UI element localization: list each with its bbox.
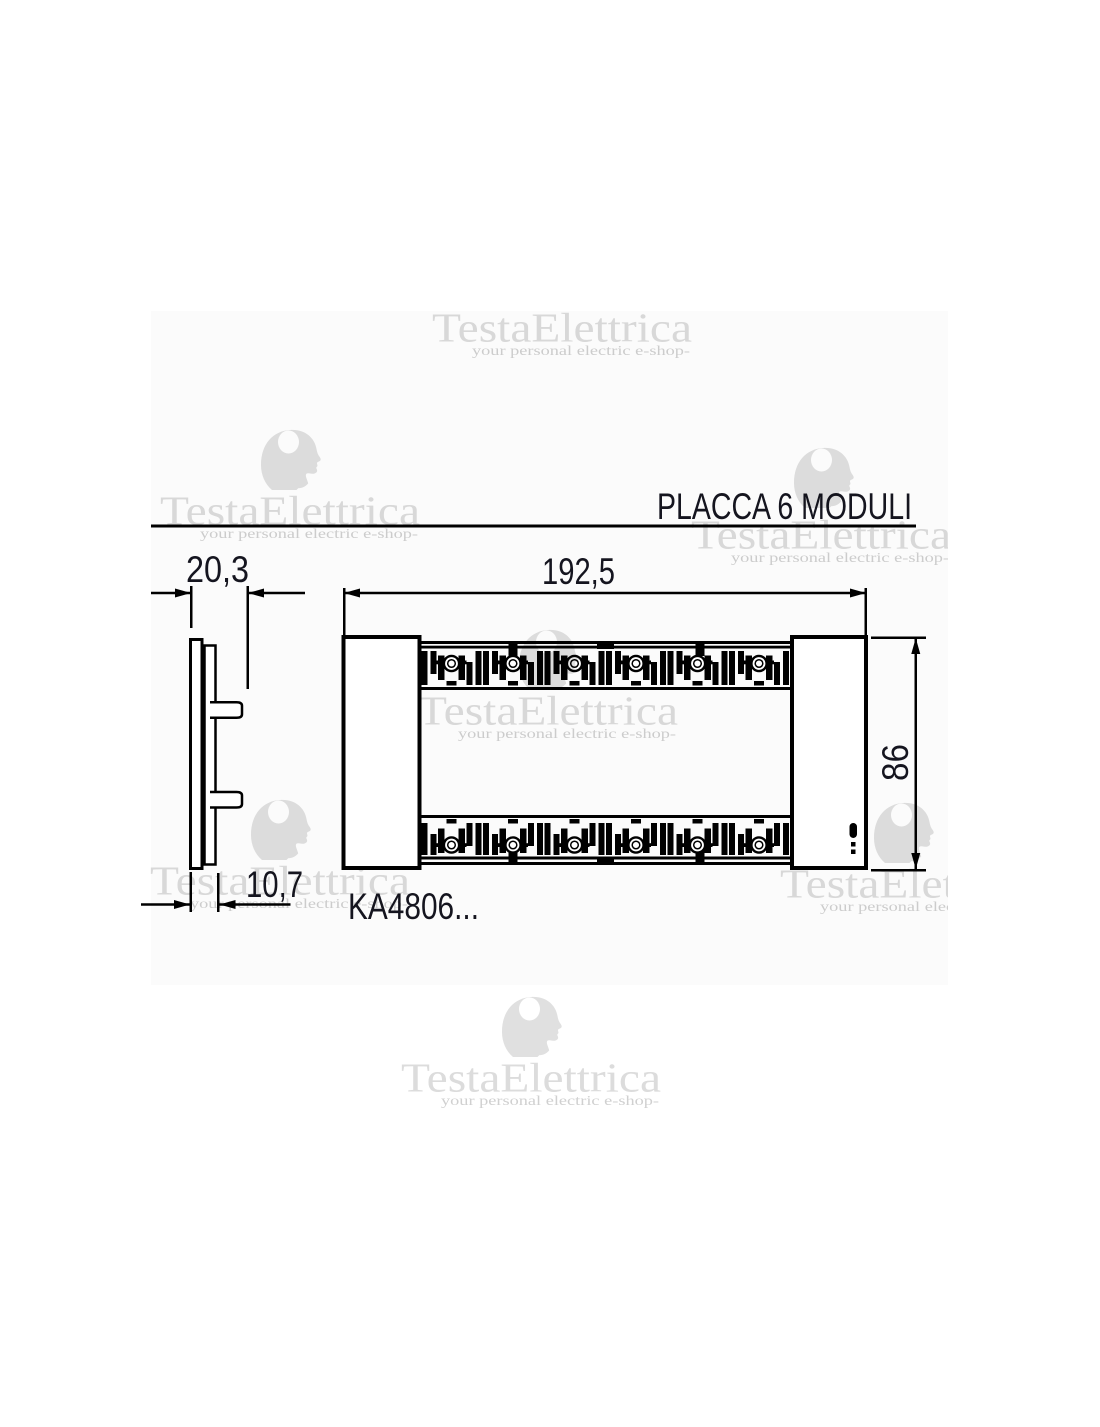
svg-text:86: 86 (875, 744, 916, 781)
svg-text:your personal electric e-shop-: your personal electric e-shop- (458, 727, 676, 742)
svg-text:192,5: 192,5 (542, 551, 615, 592)
svg-text:20,3: 20,3 (186, 549, 249, 590)
svg-text:your personal electric e-shop-: your personal electric e-shop- (731, 551, 949, 566)
svg-text:your personal electric e-shop-: your personal electric e-shop- (820, 900, 1038, 915)
svg-text:your personal electric e-shop-: your personal electric e-shop- (200, 527, 418, 542)
svg-text:your personal electric e-shop-: your personal electric e-shop- (472, 344, 690, 359)
svg-text:your personal electric e-shop-: your personal electric e-shop- (441, 1094, 659, 1109)
svg-text:your personal electric e-shop-: your personal electric e-shop- (190, 897, 408, 912)
